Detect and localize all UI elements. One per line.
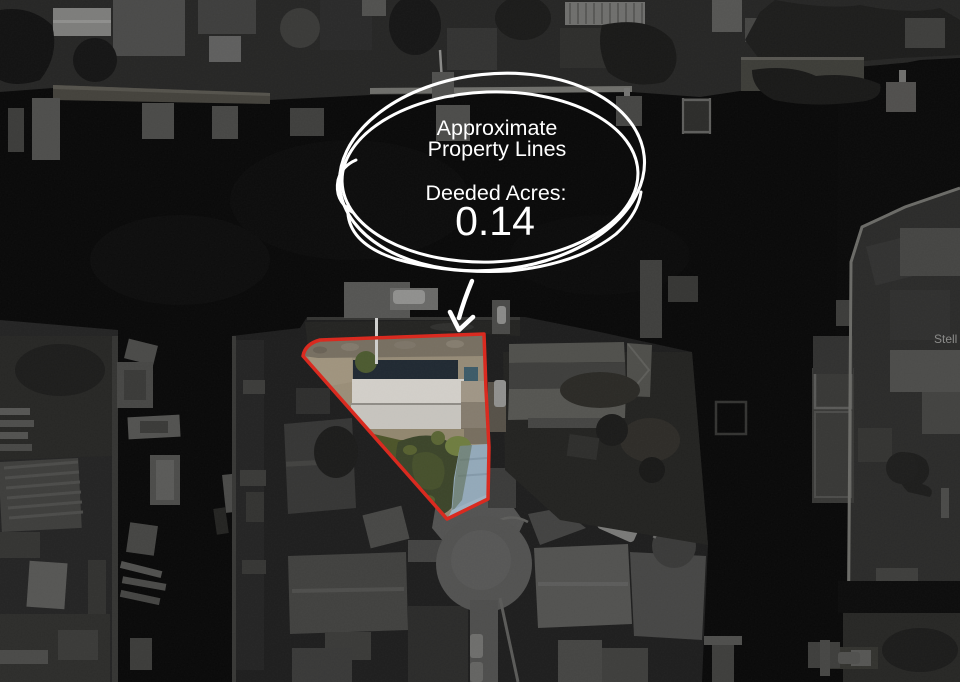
- svg-text:0.14: 0.14: [455, 198, 535, 244]
- svg-text:Property Lines: Property Lines: [428, 137, 567, 161]
